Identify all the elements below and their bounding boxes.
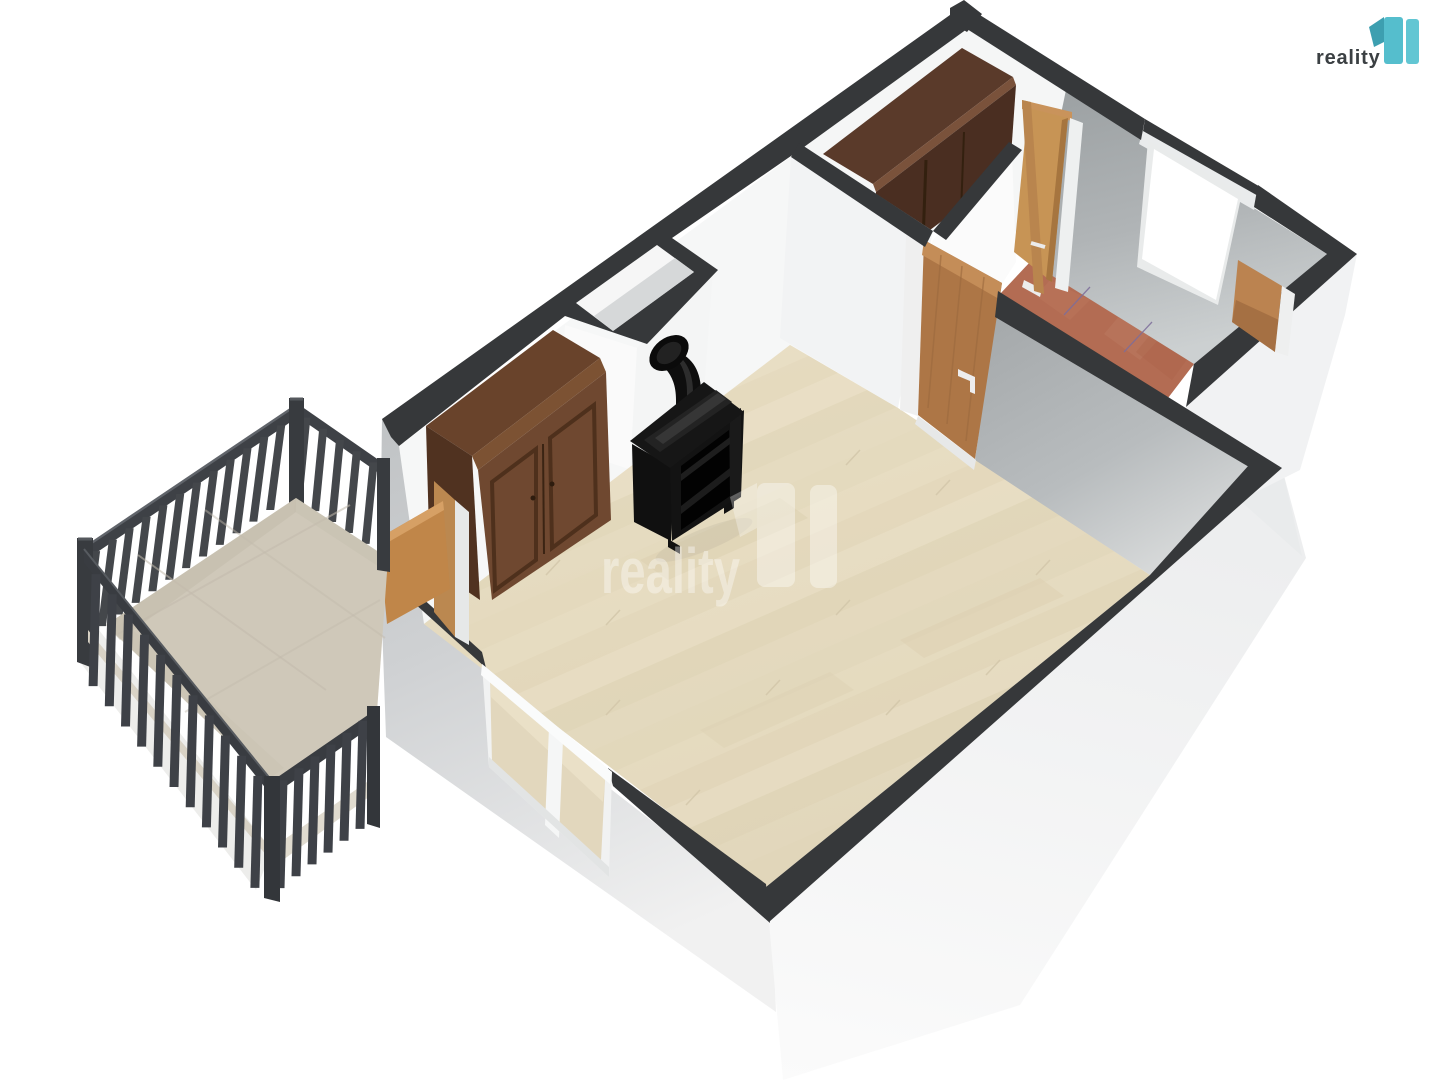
svg-text:reality: reality: [1316, 47, 1381, 69]
svg-text:reality: reality: [601, 535, 740, 607]
